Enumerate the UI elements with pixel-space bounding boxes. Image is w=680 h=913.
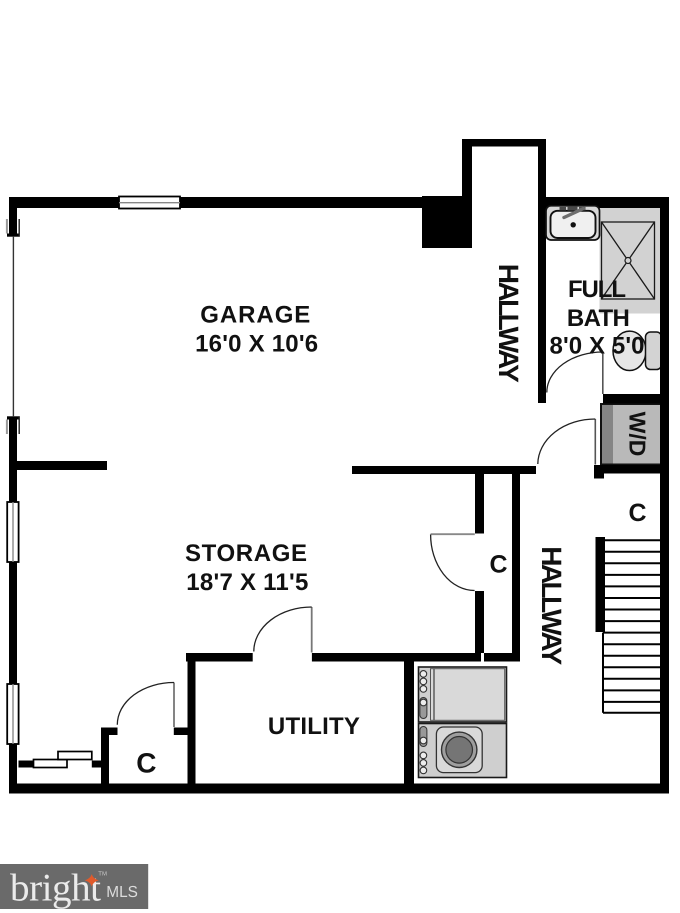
svg-text:W/D: W/D <box>624 412 650 457</box>
svg-text:8'0 X 5'0: 8'0 X 5'0 <box>550 333 645 360</box>
svg-text:STORAGE: STORAGE <box>185 540 307 567</box>
svg-text:16'0 X 10'6: 16'0 X 10'6 <box>195 330 318 357</box>
svg-text:C: C <box>628 499 646 527</box>
svg-text:HALLWAY: HALLWAY <box>536 546 567 665</box>
svg-text:bright: bright <box>10 867 101 910</box>
svg-text:UTILITY: UTILITY <box>268 713 360 740</box>
svg-text:BATH: BATH <box>567 305 630 332</box>
svg-text:C: C <box>136 747 156 778</box>
svg-text:TM: TM <box>98 870 107 877</box>
svg-text:GARAGE: GARAGE <box>200 301 310 328</box>
svg-text:MLS: MLS <box>106 884 138 901</box>
svg-text:FULL: FULL <box>568 276 626 303</box>
svg-text:C: C <box>489 550 507 578</box>
svg-text:18'7 X 11'5: 18'7 X 11'5 <box>186 569 308 596</box>
svg-text:HALLWAY: HALLWAY <box>493 264 524 383</box>
